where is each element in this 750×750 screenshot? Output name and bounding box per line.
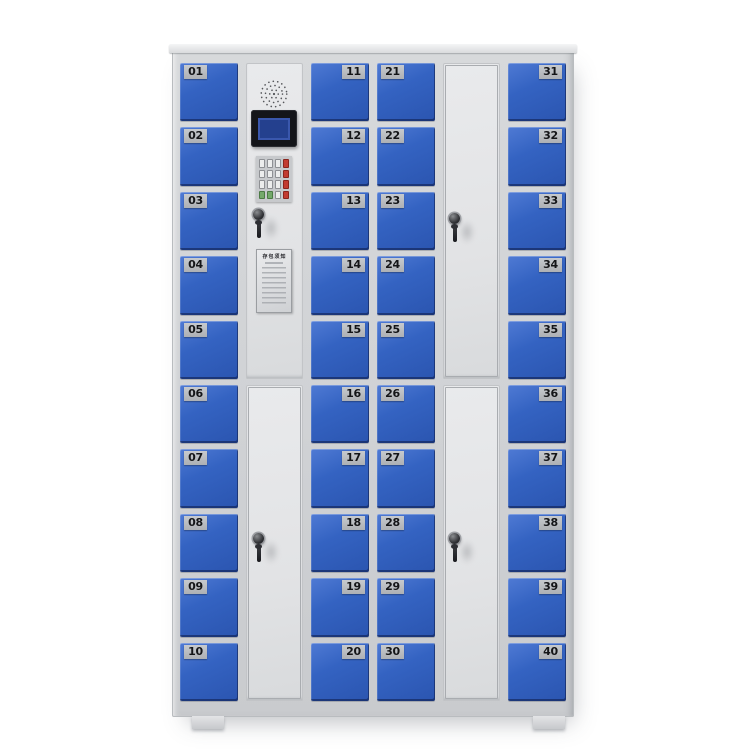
door-number-plate: 30 (381, 645, 404, 659)
key-icon (453, 546, 457, 562)
door-number-plate: 05 (184, 323, 207, 337)
door-number-plate: 09 (184, 580, 207, 594)
control-panel: 存包须知 (246, 63, 304, 379)
keypad-key (267, 170, 273, 179)
door-number-plate: 07 (184, 451, 207, 465)
panel-lockset (252, 209, 266, 238)
locker-cabinet: 存包须知 (172, 48, 574, 717)
locker-door: 36 (508, 385, 566, 443)
door-number-plate: 39 (539, 580, 562, 594)
keypad-key (275, 191, 281, 200)
door-number-plate: 06 (184, 387, 207, 401)
door-number-plate: 03 (184, 194, 207, 208)
locker-door: 05 (180, 321, 238, 379)
locker-door: 01 (180, 63, 238, 121)
keypad (256, 156, 292, 202)
keypad-key (283, 170, 289, 179)
notice-title: 存包须知 (260, 253, 288, 260)
locker-door: 23 (377, 192, 435, 250)
locker-door: 04 (180, 256, 238, 314)
locker-door: 03 (180, 192, 238, 250)
locker-door: 17 (311, 449, 369, 507)
service-door-lockset (252, 533, 266, 562)
door-number-plate: 32 (539, 129, 562, 143)
keypad-key (283, 159, 289, 168)
keypad-key (267, 180, 273, 189)
door-number-plate: 19 (342, 580, 365, 594)
product-photo: 存包须知 (0, 0, 750, 750)
door-number-plate: 35 (539, 323, 562, 337)
locker-door: 07 (180, 449, 238, 507)
door-number-plate: 04 (184, 258, 207, 272)
keypad-key (267, 159, 273, 168)
locker-door: 10 (180, 643, 238, 701)
door-number-plate: 33 (539, 194, 562, 208)
cam-lock-icon (449, 533, 460, 544)
cabinet-foot-right (533, 716, 565, 729)
locker-door: 31 (508, 63, 566, 121)
locker-door: 28 (377, 514, 435, 572)
door-number-plate: 17 (342, 451, 365, 465)
locker-door: 40 (508, 643, 566, 701)
door-number-plate: 08 (184, 516, 207, 530)
door-number-plate: 22 (381, 129, 404, 143)
locker-door: 14 (311, 256, 369, 314)
locker-door: 33 (508, 192, 566, 250)
locker-door: 34 (508, 256, 566, 314)
cam-lock-icon (449, 213, 460, 224)
door-number-plate: 27 (381, 451, 404, 465)
lcd-screen (258, 118, 290, 140)
tall-door-lower (443, 385, 501, 701)
locker-door: 18 (311, 514, 369, 572)
locker-door: 06 (180, 385, 238, 443)
key-icon (453, 226, 457, 242)
keypad-key (267, 191, 273, 200)
door-number-plate: 40 (539, 645, 562, 659)
cam-lock-icon (253, 209, 264, 220)
door-number-plate: 12 (342, 129, 365, 143)
door-number-plate: 31 (539, 65, 562, 79)
locker-door: 02 (180, 127, 238, 185)
door-number-plate: 36 (539, 387, 562, 401)
door-number-plate: 13 (342, 194, 365, 208)
door-number-plate: 38 (539, 516, 562, 530)
locker-door: 32 (508, 127, 566, 185)
locker-door: 20 (311, 643, 369, 701)
notice-text-lines (262, 267, 286, 305)
locker-door: 22 (377, 127, 435, 185)
door-number-plate: 29 (381, 580, 404, 594)
door-number-plate: 25 (381, 323, 404, 337)
locker-door: 30 (377, 643, 435, 701)
door-number-plate: 11 (342, 65, 365, 79)
door-number-plate: 24 (381, 258, 404, 272)
keypad-key (275, 170, 281, 179)
cam-lock-icon (253, 533, 264, 544)
locker-door: 38 (508, 514, 566, 572)
locker-door: 26 (377, 385, 435, 443)
keypad-key (283, 191, 289, 200)
keypad-key (275, 180, 281, 189)
locker-door: 24 (377, 256, 435, 314)
key-icon (257, 546, 261, 562)
locker-door: 15 (311, 321, 369, 379)
locker-door: 21 (377, 63, 435, 121)
locker-door: 11 (311, 63, 369, 121)
keypad-key (275, 159, 281, 168)
door-number-plate: 21 (381, 65, 404, 79)
notice-subtitle-line (265, 262, 283, 264)
locker-door: 35 (508, 321, 566, 379)
door-number-plate: 10 (184, 645, 207, 659)
door-number-plate: 16 (342, 387, 365, 401)
door-number-plate: 23 (381, 194, 404, 208)
locker-grid: 存包须知 (172, 55, 574, 709)
locker-door: 12 (311, 127, 369, 185)
door-number-plate: 26 (381, 387, 404, 401)
lcd-display (251, 110, 297, 147)
locker-door: 19 (311, 578, 369, 636)
locker-door: 37 (508, 449, 566, 507)
door-number-plate: 18 (342, 516, 365, 530)
cabinet-foot-left (192, 716, 224, 729)
door-number-plate: 37 (539, 451, 562, 465)
tall-door-upper (443, 63, 501, 379)
locker-door: 29 (377, 578, 435, 636)
door-number-plate: 14 (342, 258, 365, 272)
key-icon (257, 222, 261, 238)
locker-door: 09 (180, 578, 238, 636)
door-number-plate: 02 (184, 129, 207, 143)
locker-door: 25 (377, 321, 435, 379)
keypad-key (259, 191, 265, 200)
door-number-plate: 34 (539, 258, 562, 272)
service-door (246, 385, 304, 701)
locker-door: 27 (377, 449, 435, 507)
locker-door: 13 (311, 192, 369, 250)
keypad-key (259, 170, 265, 179)
locker-door: 08 (180, 514, 238, 572)
keypad-key (259, 159, 265, 168)
door-number-plate: 20 (342, 645, 365, 659)
locker-door: 16 (311, 385, 369, 443)
tall-door-lower-lockset (448, 533, 462, 562)
locker-door: 39 (508, 578, 566, 636)
door-number-plate: 01 (184, 65, 207, 79)
notice-plate: 存包须知 (256, 249, 292, 313)
door-number-plate: 15 (342, 323, 365, 337)
cabinet-top-cap (169, 44, 577, 53)
door-number-plate: 28 (381, 516, 404, 530)
tall-door-upper-lockset (448, 213, 462, 242)
keypad-key (259, 180, 265, 189)
keypad-key (283, 180, 289, 189)
